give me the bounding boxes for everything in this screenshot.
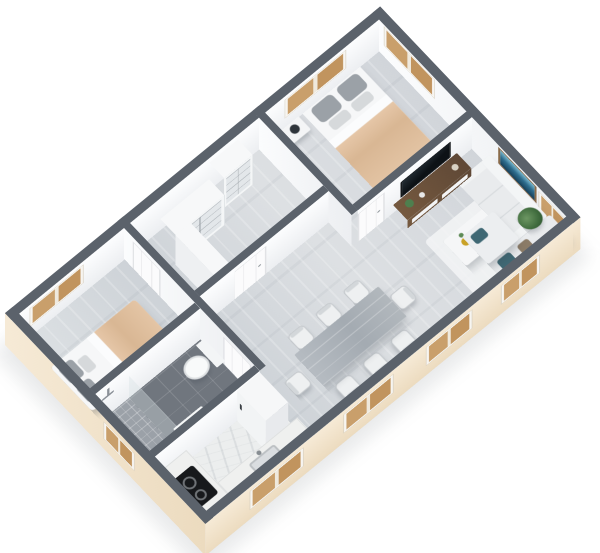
door-handle (258, 264, 261, 268)
potted-pl ant (403, 197, 416, 209)
decor-item (450, 163, 460, 172)
table-lamp (288, 123, 302, 136)
decor-item (418, 191, 426, 199)
door-handle (377, 209, 380, 213)
floor-plan-render (0, 0, 600, 553)
fridge-handle (240, 404, 242, 411)
apartment-3d-plan (5, 38, 580, 553)
teal-pillow (469, 227, 489, 245)
cushion-seam (478, 185, 503, 206)
